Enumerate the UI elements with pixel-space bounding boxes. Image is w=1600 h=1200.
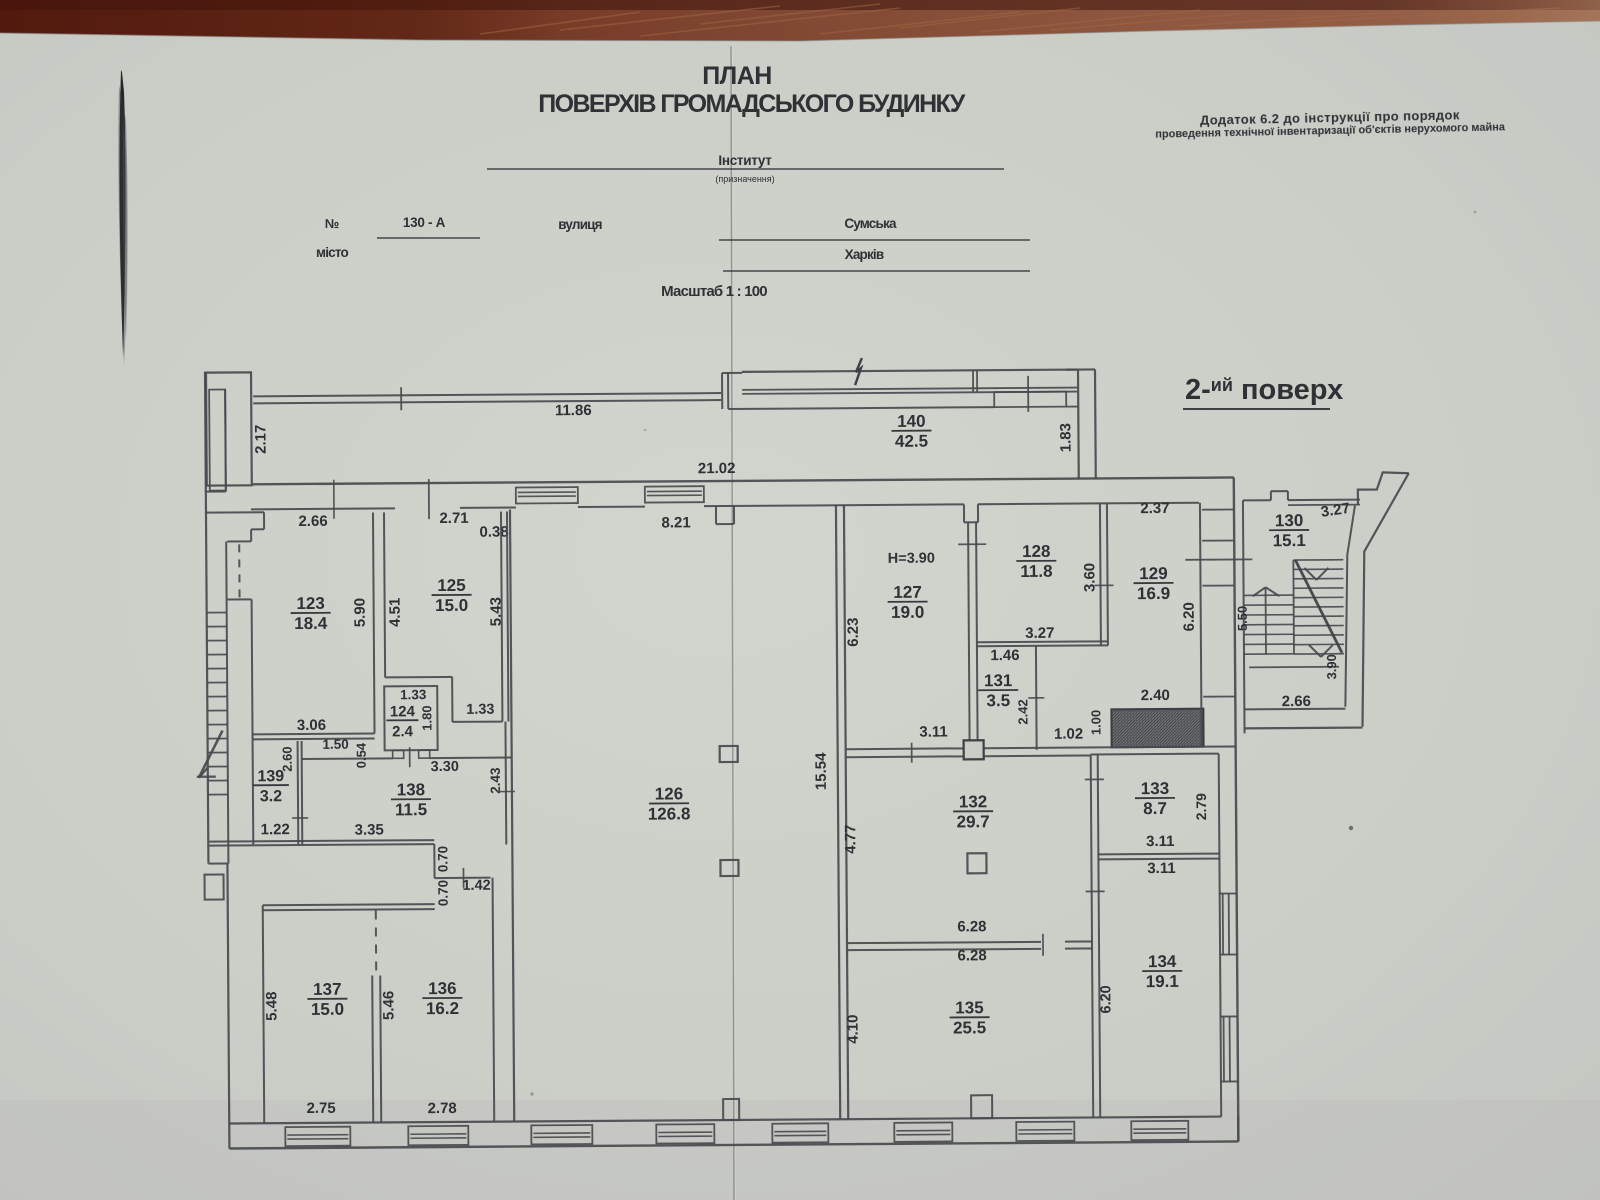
svg-text:15.1: 15.1 (1273, 531, 1306, 550)
svg-text:0.38: 0.38 (479, 524, 508, 541)
svg-text:2.66: 2.66 (298, 513, 327, 530)
svg-text:16.2: 16.2 (426, 999, 459, 1018)
svg-text:2.66: 2.66 (1282, 693, 1311, 710)
svg-text:2-ий поверх: 2-ий поверх (1185, 374, 1343, 406)
svg-text:1.42: 1.42 (462, 878, 490, 894)
svg-text:130 - А: 130 - А (403, 215, 446, 230)
svg-text:ПЛАН: ПЛАН (702, 62, 772, 90)
svg-text:6.20: 6.20 (1181, 602, 1198, 631)
svg-text:138: 138 (397, 780, 426, 799)
svg-text:136: 136 (428, 979, 457, 998)
svg-text:1.46: 1.46 (990, 647, 1019, 664)
svg-text:3.35: 3.35 (355, 821, 384, 838)
svg-text:4.10: 4.10 (845, 1014, 862, 1043)
svg-text:0.70: 0.70 (435, 846, 450, 872)
svg-text:131: 131 (984, 671, 1013, 690)
svg-text:123: 123 (296, 594, 325, 613)
svg-text:H=3.90: H=3.90 (888, 551, 935, 567)
svg-text:6.23: 6.23 (845, 617, 862, 646)
svg-text:21.02: 21.02 (698, 460, 736, 477)
svg-text:18.4: 18.4 (294, 614, 328, 633)
svg-text:0.70: 0.70 (436, 880, 451, 906)
svg-text:0.54: 0.54 (354, 742, 369, 768)
svg-text:15.54: 15.54 (813, 752, 830, 790)
svg-text:29.7: 29.7 (957, 812, 990, 831)
svg-text:2.60: 2.60 (280, 746, 295, 771)
svg-text:1.50: 1.50 (322, 737, 348, 752)
svg-text:3.2: 3.2 (260, 788, 282, 805)
svg-text:5.48: 5.48 (263, 992, 280, 1021)
svg-text:11.5: 11.5 (395, 800, 427, 819)
svg-text:8.21: 8.21 (661, 514, 690, 531)
svg-text:5.90: 5.90 (352, 598, 369, 627)
svg-text:ПОВЕРХІВ ГРОМАДСЬКОГО БУДИНКУ: ПОВЕРХІВ ГРОМАДСЬКОГО БУДИНКУ (538, 90, 966, 118)
svg-text:19.0: 19.0 (891, 603, 924, 622)
svg-text:5.50: 5.50 (1235, 606, 1250, 631)
svg-text:19.1: 19.1 (1146, 972, 1179, 991)
svg-text:130: 130 (1275, 511, 1304, 530)
svg-text:2.42: 2.42 (1015, 699, 1030, 724)
svg-text:137: 137 (313, 980, 342, 999)
svg-text:(призначення): (призначення) (715, 174, 774, 184)
svg-text:3.11: 3.11 (1146, 833, 1174, 850)
svg-text:Харків: Харків (845, 247, 884, 262)
svg-text:3.60: 3.60 (1081, 563, 1098, 592)
svg-text:127: 127 (893, 583, 922, 602)
svg-text:3.06: 3.06 (297, 717, 326, 734)
svg-text:1.22: 1.22 (261, 821, 290, 838)
svg-text:4.77: 4.77 (842, 824, 859, 853)
svg-text:25.5: 25.5 (953, 1018, 986, 1037)
svg-text:1.33: 1.33 (400, 687, 427, 702)
svg-text:15.0: 15.0 (311, 1000, 344, 1019)
svg-text:125: 125 (437, 576, 466, 595)
svg-text:124: 124 (390, 703, 416, 720)
svg-text:2.43: 2.43 (488, 767, 503, 794)
svg-text:16.9: 16.9 (1137, 584, 1170, 603)
svg-text:1.00: 1.00 (1088, 710, 1103, 735)
svg-text:2.4: 2.4 (392, 723, 414, 740)
svg-text:місто: місто (316, 245, 348, 260)
svg-text:4.51: 4.51 (387, 598, 404, 627)
svg-text:3.30: 3.30 (431, 759, 459, 775)
svg-text:3.11: 3.11 (1147, 860, 1175, 877)
svg-text:8.7: 8.7 (1143, 799, 1167, 818)
svg-text:2.71: 2.71 (439, 510, 468, 527)
svg-text:3.90: 3.90 (1324, 654, 1339, 679)
svg-text:1.83: 1.83 (1057, 423, 1074, 452)
svg-text:вулиця: вулиця (558, 217, 602, 232)
svg-text:140: 140 (897, 412, 926, 431)
svg-text:5.43: 5.43 (488, 597, 505, 626)
svg-text:2.40: 2.40 (1141, 687, 1170, 704)
svg-text:3.5: 3.5 (986, 691, 1010, 710)
svg-text:11.8: 11.8 (1020, 562, 1052, 581)
svg-text:126: 126 (655, 784, 684, 803)
svg-text:11.86: 11.86 (555, 402, 592, 419)
svg-text:135: 135 (955, 998, 984, 1017)
svg-text:1.02: 1.02 (1054, 726, 1083, 743)
svg-text:128: 128 (1022, 542, 1051, 561)
svg-text:5.46: 5.46 (380, 991, 397, 1020)
svg-text:Масштаб 1 : 100: Масштаб 1 : 100 (661, 283, 767, 300)
svg-text:2.37: 2.37 (1140, 500, 1169, 517)
svg-text:6.28: 6.28 (957, 918, 986, 935)
svg-text:3.11: 3.11 (919, 723, 947, 740)
svg-text:42.5: 42.5 (895, 432, 928, 451)
svg-text:133: 133 (1141, 779, 1170, 798)
svg-text:134: 134 (1148, 952, 1177, 971)
svg-text:132: 132 (959, 792, 988, 811)
svg-text:6.20: 6.20 (1098, 985, 1114, 1013)
svg-text:2.79: 2.79 (1193, 793, 1209, 821)
svg-text:15.0: 15.0 (435, 596, 468, 615)
svg-text:2.78: 2.78 (427, 1100, 456, 1117)
svg-text:1.80: 1.80 (419, 705, 434, 730)
svg-text:Інститут: Інститут (718, 153, 772, 168)
svg-text:2.75: 2.75 (306, 1100, 335, 1117)
svg-text:Сумська: Сумська (844, 216, 897, 231)
svg-text:129: 129 (1139, 564, 1168, 583)
svg-text:2.17: 2.17 (252, 425, 269, 454)
svg-text:1.33: 1.33 (466, 702, 494, 718)
svg-text:126.8: 126.8 (648, 804, 691, 823)
svg-text:3.27: 3.27 (1025, 625, 1054, 642)
svg-text:6.28: 6.28 (957, 947, 986, 964)
svg-text:№: № (325, 216, 340, 231)
